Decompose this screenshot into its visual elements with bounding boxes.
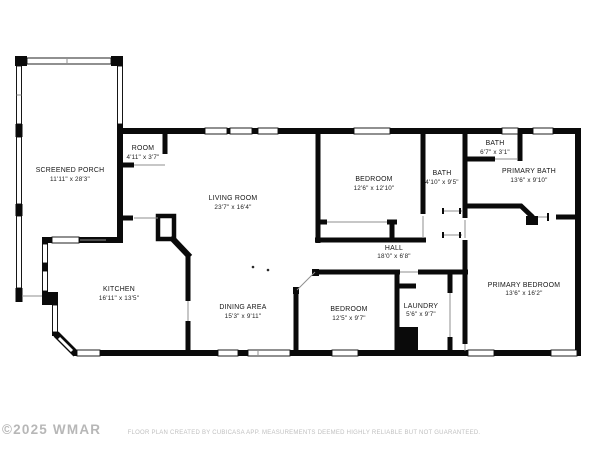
copyright-watermark: ©2025 WMAR: [2, 422, 101, 437]
room-name: DINING AREA: [219, 304, 266, 311]
floor-plan-drawing: SCREENED PORCH 11'11" x 28'3" ROOM 4'11"…: [0, 0, 600, 450]
room-name: BEDROOM: [355, 176, 392, 183]
room-label-laundry: LAUNDRY 5'6" x 9'7": [404, 303, 439, 318]
room-name: PRIMARY BATH: [502, 168, 556, 175]
room-label-bedroom-2: BEDROOM 12'5" x 9'7": [330, 306, 367, 322]
room-label-primary-bedroom: PRIMARY BEDROOM 13'6" x 16'2": [488, 282, 560, 297]
room-dimensions: 4'10" x 9'5": [425, 179, 458, 186]
room-label-primary-bath: PRIMARY BATH 13'6" x 9'10": [502, 168, 556, 184]
door-openings: [22, 159, 548, 351]
room-label-kitchen: KITCHEN 16'11" x 13'5": [99, 286, 139, 302]
room-label-hall: HALL 18'0" x 6'8": [377, 245, 410, 260]
room-name: BATH: [433, 170, 452, 177]
footer: ©2025 WMAR FLOOR PLAN CREATED BY CUBICAS…: [2, 422, 480, 437]
room-name: LIVING ROOM: [209, 195, 258, 202]
wall-blocks: [15, 56, 538, 353]
room-dimensions: 5'6" x 9'7": [406, 311, 436, 318]
room-label-bedroom: BEDROOM 12'6" x 12'10": [354, 176, 395, 192]
room-name: KITCHEN: [103, 286, 135, 293]
room-label-bath-2: BATH 6'7" x 3'1": [480, 140, 510, 156]
room-name: SCREENED PORCH: [36, 167, 105, 174]
room-label-screened-porch: SCREENED PORCH 11'11" x 28'3": [36, 167, 105, 183]
room-dimensions: 15'3" x 9'11": [225, 313, 262, 320]
room-name: BATH: [486, 140, 505, 147]
room-dimensions: 18'0" x 6'8": [377, 253, 410, 260]
room-dimensions: 6'7" x 3'1": [480, 149, 510, 156]
room-dimensions: 12'6" x 12'10": [354, 185, 395, 192]
room-dimensions: 13'6" x 16'2": [505, 290, 542, 297]
room-label-living-room: LIVING ROOM 23'7" x 16'4": [209, 195, 258, 211]
room-name: HALL: [385, 245, 403, 252]
room-name: ROOM: [132, 145, 154, 152]
room-name: BEDROOM: [330, 306, 367, 313]
room-label-bath: BATH 4'10" x 9'5": [425, 170, 458, 186]
room-dimensions: 23'7" x 16'4": [214, 204, 251, 211]
room-dimensions: 4'11" x 3'7": [127, 154, 160, 161]
room-dimensions: 12'5" x 9'7": [332, 315, 365, 322]
disclaimer-text: FLOOR PLAN CREATED BY CUBICASA APP. MEAS…: [128, 430, 481, 436]
room-dimensions: 13'6" x 9'10": [510, 177, 547, 184]
room-dimensions: 16'11" x 13'5": [99, 295, 139, 302]
room-label-room: ROOM 4'11" x 3'7": [127, 145, 160, 161]
pantry-closet: [158, 216, 174, 239]
room-name: PRIMARY BEDROOM: [488, 282, 560, 289]
room-dimensions: 11'11" x 28'3": [50, 176, 90, 183]
floor-plan-page: SCREENED PORCH 11'11" x 28'3" ROOM 4'11"…: [0, 0, 600, 450]
room-label-dining-area: DINING AREA 15'3" x 9'11": [219, 304, 266, 320]
utility-block: [396, 327, 418, 353]
room-name: LAUNDRY: [404, 303, 439, 310]
